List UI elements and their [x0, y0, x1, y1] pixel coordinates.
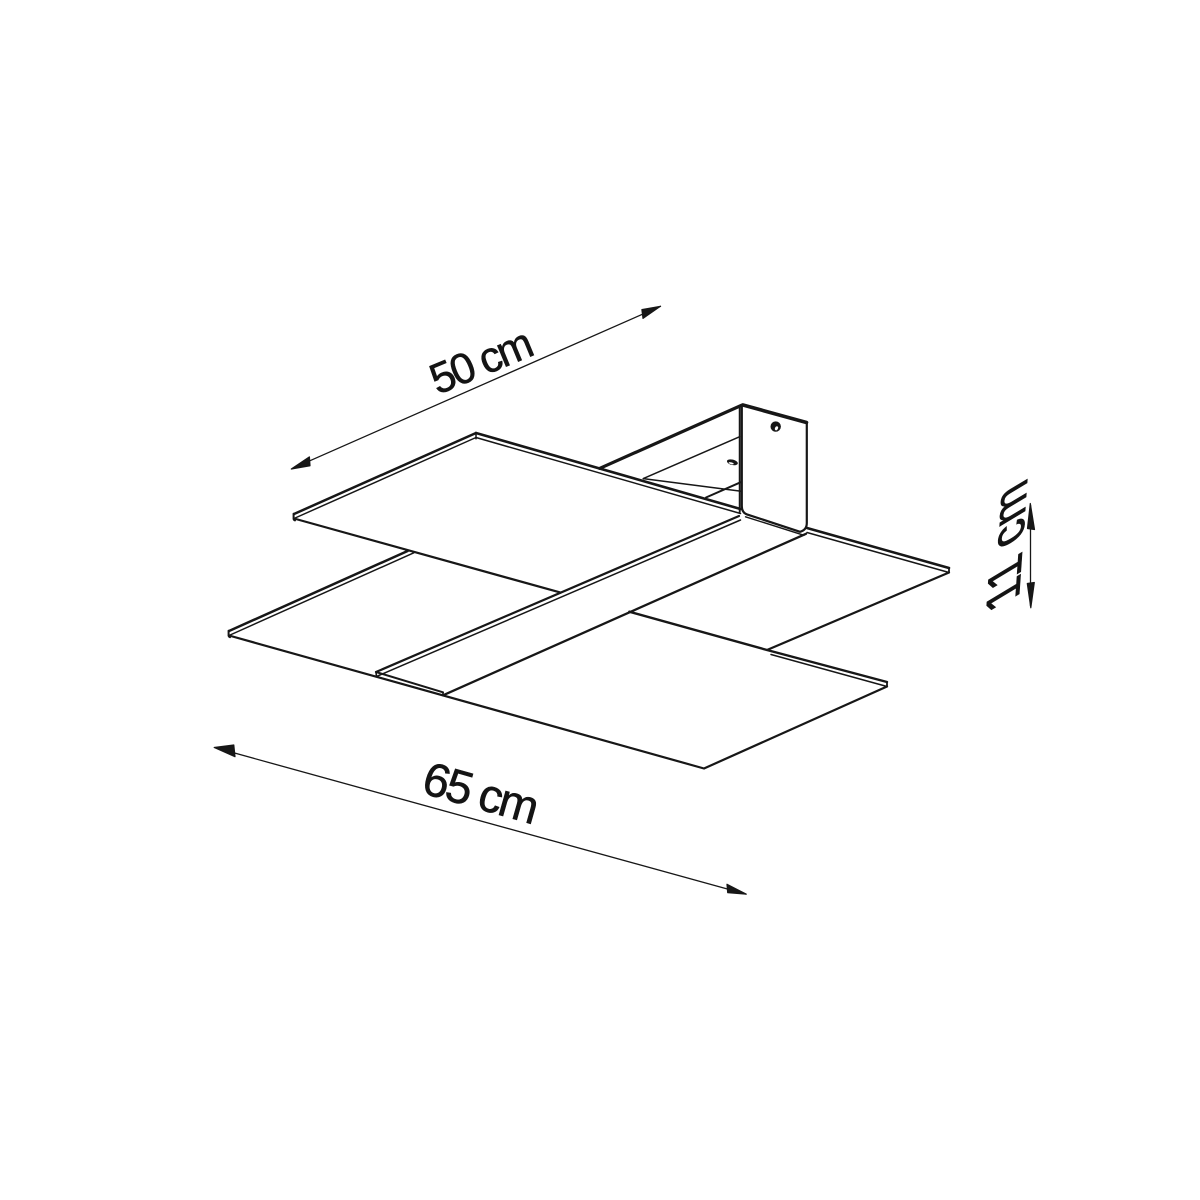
svg-text:11 cm: 11 cm	[976, 470, 1038, 624]
svg-text:50 cm: 50 cm	[423, 320, 538, 404]
